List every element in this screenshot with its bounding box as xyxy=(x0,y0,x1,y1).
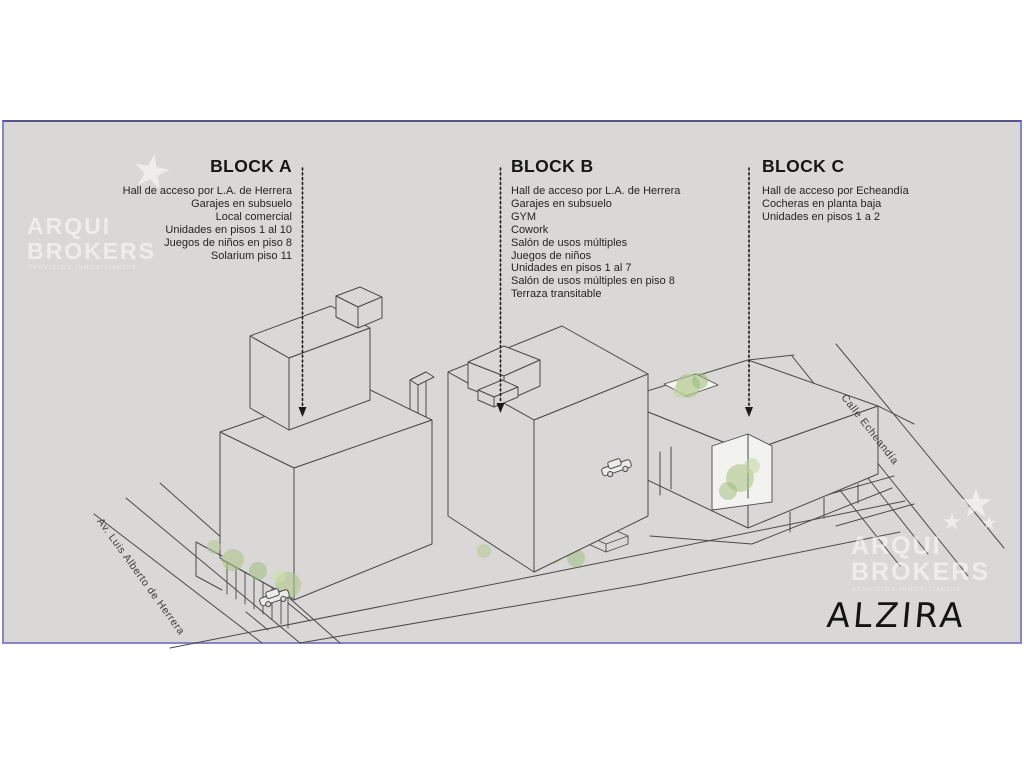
watermark-brand-brokers: BROKERS xyxy=(851,560,990,585)
feature-line: Unidades en pisos 1 al 7 xyxy=(511,262,726,275)
block-b-features: Hall de acceso por L.A. de Herrera Garaj… xyxy=(511,185,726,301)
feature-line: Terraza transitable xyxy=(511,288,726,301)
watermark-tagline: SERVICIOS INMOBILIARIOS xyxy=(852,588,961,594)
block-b-title: BLOCK B xyxy=(511,156,726,177)
block-a-info: BLOCK A Hall de acceso por L.A. de Herre… xyxy=(110,156,292,262)
feature-line: Garajes en subsuelo xyxy=(110,198,292,211)
feature-line: Solarium piso 11 xyxy=(110,250,292,263)
watermark-brand-arqui: ARQUI xyxy=(851,534,942,559)
feature-line: Salón de usos múltiples en piso 8 xyxy=(511,275,726,288)
feature-line: Hall de acceso por Echeandía xyxy=(762,185,977,198)
feature-line: Unidades en pisos 1 al 10 xyxy=(110,224,292,237)
feature-line: Salón de usos múltiples xyxy=(511,237,726,250)
watermark-brand-arqui: ARQUI xyxy=(27,215,111,238)
feature-line: Unidades en pisos 1 a 2 xyxy=(762,211,977,224)
block-c-features: Hall de acceso por Echeandía Cocheras en… xyxy=(762,185,977,224)
feature-line: Juegos de niños en piso 8 xyxy=(110,237,292,250)
feature-line: Cocheras en planta baja xyxy=(762,198,977,211)
feature-line: Garajes en subsuelo xyxy=(511,198,726,211)
block-b-info: BLOCK B Hall de acceso por L.A. de Herre… xyxy=(511,156,726,301)
project-name-signature: ALZIRA xyxy=(825,596,968,636)
block-a-features: Hall de acceso por L.A. de Herrera Garaj… xyxy=(110,185,292,262)
feature-line: Hall de acceso por L.A. de Herrera xyxy=(110,185,292,198)
block-c-title: BLOCK C xyxy=(762,156,977,177)
feature-line: Local comercial xyxy=(110,211,292,224)
block-a-massing xyxy=(196,287,432,628)
feature-line: Hall de acceso por L.A. de Herrera xyxy=(511,185,726,198)
site-plan-drawing xyxy=(0,0,1024,768)
feature-line: Cowork xyxy=(511,224,726,237)
block-c-info: BLOCK C Hall de acceso por Echeandía Coc… xyxy=(762,156,977,224)
watermark-star-icon: ★ xyxy=(942,511,962,533)
watermark-tagline: SERVICIOS INMOBILIARIOS xyxy=(28,266,137,272)
block-a-title: BLOCK A xyxy=(110,156,292,177)
brochure-page: ★ ARQUI BROKERS SERVICIOS INMOBILIARIOS … xyxy=(0,0,1024,768)
feature-line: GYM xyxy=(511,211,726,224)
feature-line: Juegos de niños xyxy=(511,250,726,263)
watermark-star-icon: ★ xyxy=(981,514,997,532)
